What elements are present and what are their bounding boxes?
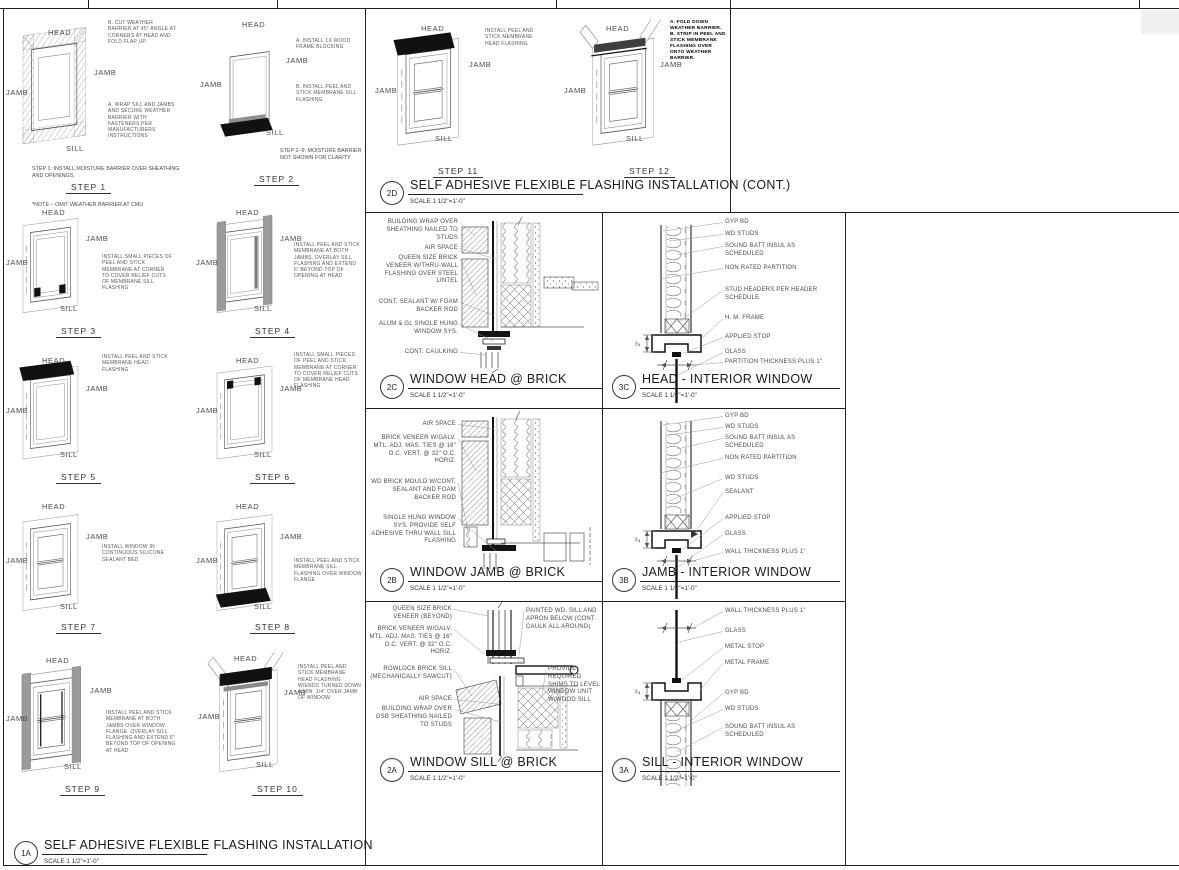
annotation-label: SEALANT	[725, 489, 825, 497]
step-title: STEP 11	[433, 166, 483, 178]
jamb-left-label: JAMB	[564, 86, 586, 95]
head-label: HEAD	[236, 208, 259, 217]
border-line	[88, 0, 89, 8]
annotation-label: SOUND BATT INSUL AS SCHEDULED	[725, 724, 825, 740]
step-note: INSTALL PEEL AND STICK MEMBRANE AT BOTH …	[294, 242, 362, 280]
sill-label: SILL	[60, 304, 78, 313]
dimension-text: 2"	[636, 689, 642, 694]
title-underline	[408, 581, 603, 582]
detail-title-block: 3BJAMB - INTERIOR WINDOWSCALE 1 1/2"=1'-…	[612, 565, 852, 595]
sill-label: SILL	[254, 602, 272, 611]
title-underline	[640, 771, 840, 772]
architectural-drawing-sheet: HEADJAMBJAMBSILLB. CUT WEATHER BARRIER A…	[0, 0, 1179, 870]
jamb-left-label: JAMB	[6, 258, 28, 267]
detail-scale: SCALE 1 1/2"=1'-0"	[642, 392, 697, 399]
detail-title: JAMB - INTERIOR WINDOW	[642, 565, 811, 579]
jamb-left-label: JAMB	[196, 406, 218, 415]
jamb-left-label: JAMB	[6, 88, 28, 97]
detail-id-badge: 2B	[380, 568, 404, 592]
detail-scale: SCALE 1 1/2"=1'-0"	[642, 585, 697, 592]
annotation-label: GLASS	[725, 531, 825, 539]
detail-id-badge: 1A	[14, 841, 38, 865]
step-note: A. WRAP SILL AND JAMBS AND SECURE WEATHE…	[108, 102, 176, 140]
annotation-label: WALL THICKNESS PLUS 1"	[725, 608, 825, 616]
axon-window-group	[217, 366, 272, 459]
axon-window-group	[23, 515, 78, 611]
annotation-label: METAL FRAME	[725, 660, 825, 668]
title-underline	[408, 771, 603, 772]
annotation-label: PROVIDE REQUIRED SHIMS TO LEVEL WINDOW U…	[548, 666, 602, 705]
step-figure: HEADJAMBJAMBSILLINSTALL PEEL AND STICK M…	[192, 202, 365, 346]
annotation-label: GYP BD	[725, 413, 825, 421]
head-label: HEAD	[42, 502, 65, 511]
axon-window-group	[23, 27, 85, 143]
border-line	[277, 0, 278, 8]
detail-title-block: 2AWINDOW SILL @ BRICKSCALE 1 1/2"=1'-0"	[380, 755, 615, 785]
detail-title: SELF ADHESIVE FLEXIBLE FLASHING INSTALLA…	[44, 838, 373, 852]
step-caption: STEP 2–9: MOISTURE BARRIER NOT SHOWN FOR…	[280, 148, 362, 162]
annotation-label: SOUND BATT INSUL AS SCHEDULED	[725, 435, 825, 451]
sill-label: SILL	[435, 134, 453, 143]
title-underline	[42, 854, 207, 855]
jamb-right-label: JAMB	[469, 60, 491, 69]
axon-window-group	[394, 31, 459, 146]
annotation-label: AIR SPACE	[370, 421, 456, 429]
annotation-label: NON RATED PARTITION	[725, 455, 825, 463]
axon-window-group	[217, 215, 272, 313]
axon-window-group	[580, 20, 661, 147]
annotation-label: METAL STOP	[725, 644, 825, 652]
detail-id-badge: 3C	[612, 375, 636, 399]
dimension-text: 2"	[636, 341, 642, 346]
head-label: HEAD	[606, 24, 629, 33]
detail-scale: SCALE 1 1/2"=1'-0"	[44, 858, 99, 865]
head-label: HEAD	[234, 654, 257, 663]
head-label: HEAD	[242, 20, 265, 29]
faint-highlight	[1141, 10, 1179, 34]
step-note: B. CUT WEATHER BARRIER AT 45° ANGLE AT C…	[108, 20, 176, 45]
annotation-label: AIR SPACE	[368, 696, 452, 704]
detail-id-badge: 2A	[380, 758, 404, 782]
jamb-right-label: JAMB	[286, 56, 308, 65]
detail-scale: SCALE 1 1/2"=1'-0"	[642, 775, 697, 782]
head-label: HEAD	[236, 356, 259, 365]
head-label: HEAD	[48, 28, 71, 37]
detail-scale: SCALE 1 1/2"=1'-0"	[410, 775, 465, 782]
sill-label: SILL	[60, 450, 78, 459]
annotation-label: WD BRICK MOULD W/CONT. SEALANT AND FOAM …	[370, 479, 456, 502]
detail-id-badge: 3A	[612, 758, 636, 782]
detail-title-block: 2BWINDOW JAMB @ BRICKSCALE 1 1/2"=1'-0"	[380, 565, 615, 595]
step-title: STEP 8	[250, 622, 295, 634]
annotation-label: APPLIED STOP	[725, 334, 825, 342]
detail-scale: SCALE 1 1/2"=1'-0"	[410, 585, 465, 592]
step-note: INSTALL SMALL PIECES OF PEEL AND STICK M…	[294, 352, 362, 390]
annotation-label: CONT. SEALANT W/ FOAM BACKER ROD	[372, 299, 458, 315]
annotation-label: WALL THICKNESS PLUS 1"	[725, 549, 825, 557]
head-label: HEAD	[421, 24, 444, 33]
step-note: INSTALL PEEL AND STICK MEMBRANE HEAD FLA…	[102, 354, 172, 373]
head-label: HEAD	[236, 502, 259, 511]
step-title: STEP 3	[56, 326, 101, 338]
annotation-label: PARTITION THICKNESS PLUS 1"	[725, 359, 825, 367]
step-title: STEP 2	[254, 174, 299, 186]
jamb-left-label: JAMB	[198, 712, 220, 721]
step-note: INSTALL PEEL AND STICK MEMBRANE HEAD FLA…	[485, 28, 549, 47]
detail-id-badge: 2D	[380, 181, 404, 205]
axon-window-group	[22, 666, 81, 772]
axon-window-group	[23, 218, 78, 312]
sill-label: SILL	[266, 128, 284, 137]
step-figure: HEADJAMBJAMBSILLINSTALL PEEL AND STICK M…	[192, 496, 365, 640]
axon-window-group	[220, 51, 273, 137]
jamb-left-label: JAMB	[6, 556, 28, 565]
detail-title-block: 3ASILL - INTERIOR WINDOWSCALE 1 1/2"=1'-…	[612, 755, 852, 785]
head-label: HEAD	[42, 208, 65, 217]
head-label: HEAD	[46, 656, 69, 665]
annotation-label: BRICK VENEER W/GALV. MTL. ADJ. MAS. TIES…	[368, 626, 452, 657]
sill-label: SILL	[64, 762, 82, 771]
annotation-label: AIR SPACE	[372, 245, 458, 253]
border-line	[0, 8, 1179, 9]
annotation-label: BRICK VENEER W/GALV. MTL. ADJ. MAS. TIES…	[370, 435, 456, 466]
detail-title: WINDOW HEAD @ BRICK	[410, 372, 567, 386]
title-underline	[640, 581, 840, 582]
step-note: INSTALL PEEL AND STICK MEMBRANE AT BOTH …	[106, 710, 176, 754]
step-title: STEP 4	[250, 326, 295, 338]
dimension-text: 2"	[636, 537, 642, 542]
annotation-label: APPLIED STOP	[725, 515, 825, 523]
step-note: INSTALL PEEL AND STICK MEMBRANE SILL FLA…	[294, 558, 362, 583]
axon-window-group	[216, 515, 272, 611]
annotation-label: QUEEN SIZE BRICK VENEER W/THRU-WALL FLAS…	[372, 255, 458, 286]
step-note: A. FOLD DOWN WEATHER BARRIER. B. STRIP I…	[670, 20, 728, 62]
detail-scale: SCALE 1 1/2"=1'-0"	[410, 198, 465, 205]
step-caption: STEP 1: INSTALL MOISTURE BARRIER OVER SH…	[32, 166, 190, 180]
step-title: STEP 9	[60, 784, 105, 796]
sill-label: SILL	[66, 144, 84, 153]
annotation-label: WD STUDS	[725, 231, 825, 239]
annotation-label: SOUND BATT INSUL AS SCHEDULED	[725, 243, 825, 259]
annotation-label: NON RATED PARTITION	[725, 265, 825, 273]
jamb-right-label: JAMB	[90, 686, 112, 695]
jamb-right-label: JAMB	[86, 532, 108, 541]
step-title: STEP 12	[624, 166, 675, 178]
detail-title: SELF ADHESIVE FLEXIBLE FLASHING INSTALLA…	[410, 178, 791, 192]
step-figure: HEADJAMBJAMBSILLB. CUT WEATHER BARRIER A…	[6, 14, 188, 210]
annotation-label: SINGLE HUNG WINDOW SYS. PROVIDE SELF ADH…	[370, 515, 456, 546]
detail-title: SILL - INTERIOR WINDOW	[642, 755, 803, 769]
step-title: STEP 6	[250, 472, 295, 484]
sill-label: SILL	[256, 760, 274, 769]
annotation-label: ROWLOCK BRICK SILL (MECHANICALLY SAWCUT)	[368, 666, 452, 682]
title-underline	[408, 388, 603, 389]
annotation-label: STUD HEADERS PER HEADER SCHEDULE	[725, 287, 835, 303]
detail-title: HEAD - INTERIOR WINDOW	[642, 372, 812, 386]
annotation-label: GLASS	[725, 628, 825, 636]
border-line	[1139, 0, 1140, 8]
detail-title-block: 2DSELF ADHESIVE FLEXIBLE FLASHING INSTAL…	[380, 178, 595, 208]
title-underline	[408, 194, 583, 195]
step-note: INSTALL WINDOW IN CONTINUOUS SILICONE SE…	[102, 544, 172, 563]
step-figure: HEADJAMBJAMBSILLINSTALL SMALL PIECES OF …	[192, 348, 365, 490]
step-title: STEP 1	[66, 182, 111, 194]
step-figure: HEADJAMBJAMBSILLINSTALL PEEL AND STICK M…	[6, 348, 188, 490]
jamb-left-label: JAMB	[375, 86, 397, 95]
detail-scale: SCALE 1 1/2"=1'-0"	[410, 392, 465, 399]
title-underline	[640, 388, 840, 389]
jamb-right-label: JAMB	[86, 384, 108, 393]
jamb-left-label: JAMB	[6, 406, 28, 415]
annotation-label: ALUM & GL SINGLE HUNG WINDOW SYS.	[372, 321, 458, 337]
annotation-label: GYP BD	[725, 690, 825, 698]
head-label: HEAD	[42, 356, 65, 365]
annotation-label: H. M. FRAME	[725, 315, 825, 323]
detail-id-badge: 2C	[380, 375, 404, 399]
border-line	[3, 8, 4, 866]
jamb-left-label: JAMB	[200, 80, 222, 89]
annotation-label: BUILDING WRAP OVER OSB SHEATHING NAILED …	[368, 706, 452, 729]
annotation-label: WD STUDS	[725, 424, 825, 432]
sill-label: SILL	[60, 602, 78, 611]
step-figure: HEADJAMBJAMBSILLINSTALL PEEL AND STICK M…	[192, 648, 365, 812]
jamb-left-label: JAMB	[6, 714, 28, 723]
annotation-label: QUEEN SIZE BRICK VENEER (BEYOND)	[368, 606, 452, 622]
annotation-label: WD STUDS	[725, 706, 825, 714]
step-title: STEP 5	[56, 472, 101, 484]
step-title: STEP 10	[252, 784, 303, 796]
step-title: STEP 7	[56, 622, 101, 634]
annotation-label: PAINTED WD. SILL AND APRON BELOW (CONT. …	[526, 608, 600, 631]
jamb-right-label: JAMB	[86, 234, 108, 243]
detail-title-block: 2CWINDOW HEAD @ BRICKSCALE 1 1/2"=1'-0"	[380, 372, 615, 402]
step-note: B. INSTALL PEEL AND STICK MEMBRANE SILL …	[296, 84, 362, 103]
sill-label: SILL	[626, 134, 644, 143]
sill-label: SILL	[254, 304, 272, 313]
sill-label: SILL	[254, 450, 272, 459]
step-figure: HEADJAMBJAMBSILLINSTALL WINDOW IN CONTIN…	[6, 496, 188, 640]
detail-title-block: 1ASELF ADHESIVE FLEXIBLE FLASHING INSTAL…	[14, 838, 219, 868]
jamb-left-label: JAMB	[196, 556, 218, 565]
detail-title-block: 3CHEAD - INTERIOR WINDOWSCALE 1 1/2"=1'-…	[612, 372, 852, 402]
detail-id-badge: 3B	[612, 568, 636, 592]
step-figure: HEADJAMBJAMBSILLINSTALL PEEL AND STICK M…	[6, 648, 188, 812]
jamb-right-label: JAMB	[94, 68, 116, 77]
jamb-left-label: JAMB	[196, 258, 218, 267]
annotation-label: GYP BD	[725, 219, 825, 227]
detail-title: WINDOW JAMB @ BRICK	[410, 565, 565, 579]
annotation-label: WD STUDS	[725, 475, 825, 483]
annotation-label: GLASS	[725, 349, 825, 357]
annotation-label: BUILDING WRAP OVER SHEATHING NAILED TO S…	[372, 219, 458, 242]
border-line	[730, 0, 731, 8]
step-figure: HEADJAMBJAMBSILLINSTALL SMALL PIECES OF …	[6, 202, 188, 346]
annotation-label: CONT. CAULKING	[372, 349, 458, 357]
border-line	[556, 0, 557, 8]
step-note: INSTALL SMALL PIECES OF PEEL AND STICK M…	[102, 254, 172, 292]
step-note: A. INSTALL 1X WOOD FRAME BLOCKING	[296, 38, 362, 51]
jamb-right-label: JAMB	[280, 532, 302, 541]
detail-title: WINDOW SILL @ BRICK	[410, 755, 557, 769]
step-note: INSTALL PEEL AND STICK MEMBRANE HEAD FLA…	[298, 664, 362, 702]
step-figure: HEADJAMBJAMBSILLA. INSTALL 1X WOOD FRAME…	[192, 14, 365, 210]
